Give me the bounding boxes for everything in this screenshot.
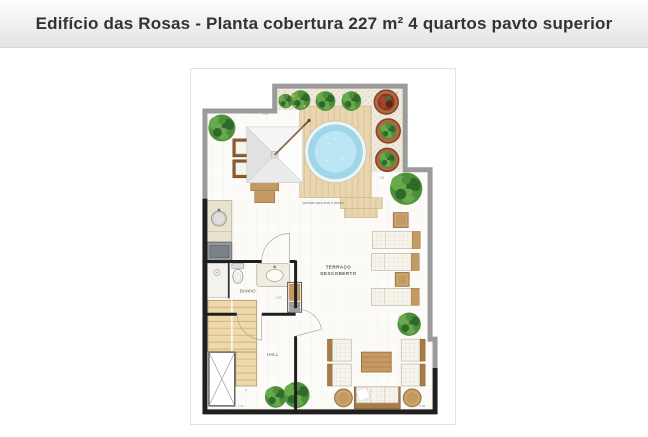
shower-stall [207,263,228,297]
floor-plan-drawing: previsão para deck e piscina [191,69,455,424]
page-title: Edifício das Rosas - Planta cobertura 22… [36,14,613,34]
washbasin [257,263,290,286]
title-bar: Edifício das Rosas - Planta cobertura 22… [0,0,648,48]
pouf [334,389,352,407]
hall-label: HALL [267,352,279,357]
dimension-label: 2.94 [276,295,282,299]
coffee-table [361,352,391,372]
floor-plan-image: previsão para deck e piscina [190,68,456,425]
toilet [232,263,244,283]
terrace-label: DESCOBERTO [320,271,356,276]
terracotta-pot [376,148,399,171]
terrace-label: TERRAÇO [326,264,351,269]
sun-lounger [372,232,420,249]
dimension-label: 7.06 [378,176,384,180]
deck-note: previsão para deck e piscina [303,201,345,205]
dimension-label: 5.26 [419,404,425,408]
armchair [327,339,351,361]
gourmet-counter [206,201,232,242]
faucet [217,209,220,212]
armchair [401,364,425,386]
pool [305,121,367,183]
armchair [327,364,351,386]
grill [207,243,232,261]
parasol [247,119,311,183]
sun-lounger [371,288,419,305]
dimension-label: 1.61 [238,404,244,408]
stair-void [209,352,235,406]
armchair [401,339,425,361]
dimension-label: 4.91 [263,112,269,116]
terracotta-pot [376,119,400,143]
dimension-label: 4.01 [392,91,398,95]
bathroom-label: BANHO [240,288,256,293]
sofa [354,387,400,409]
sun-lounger [371,253,419,270]
